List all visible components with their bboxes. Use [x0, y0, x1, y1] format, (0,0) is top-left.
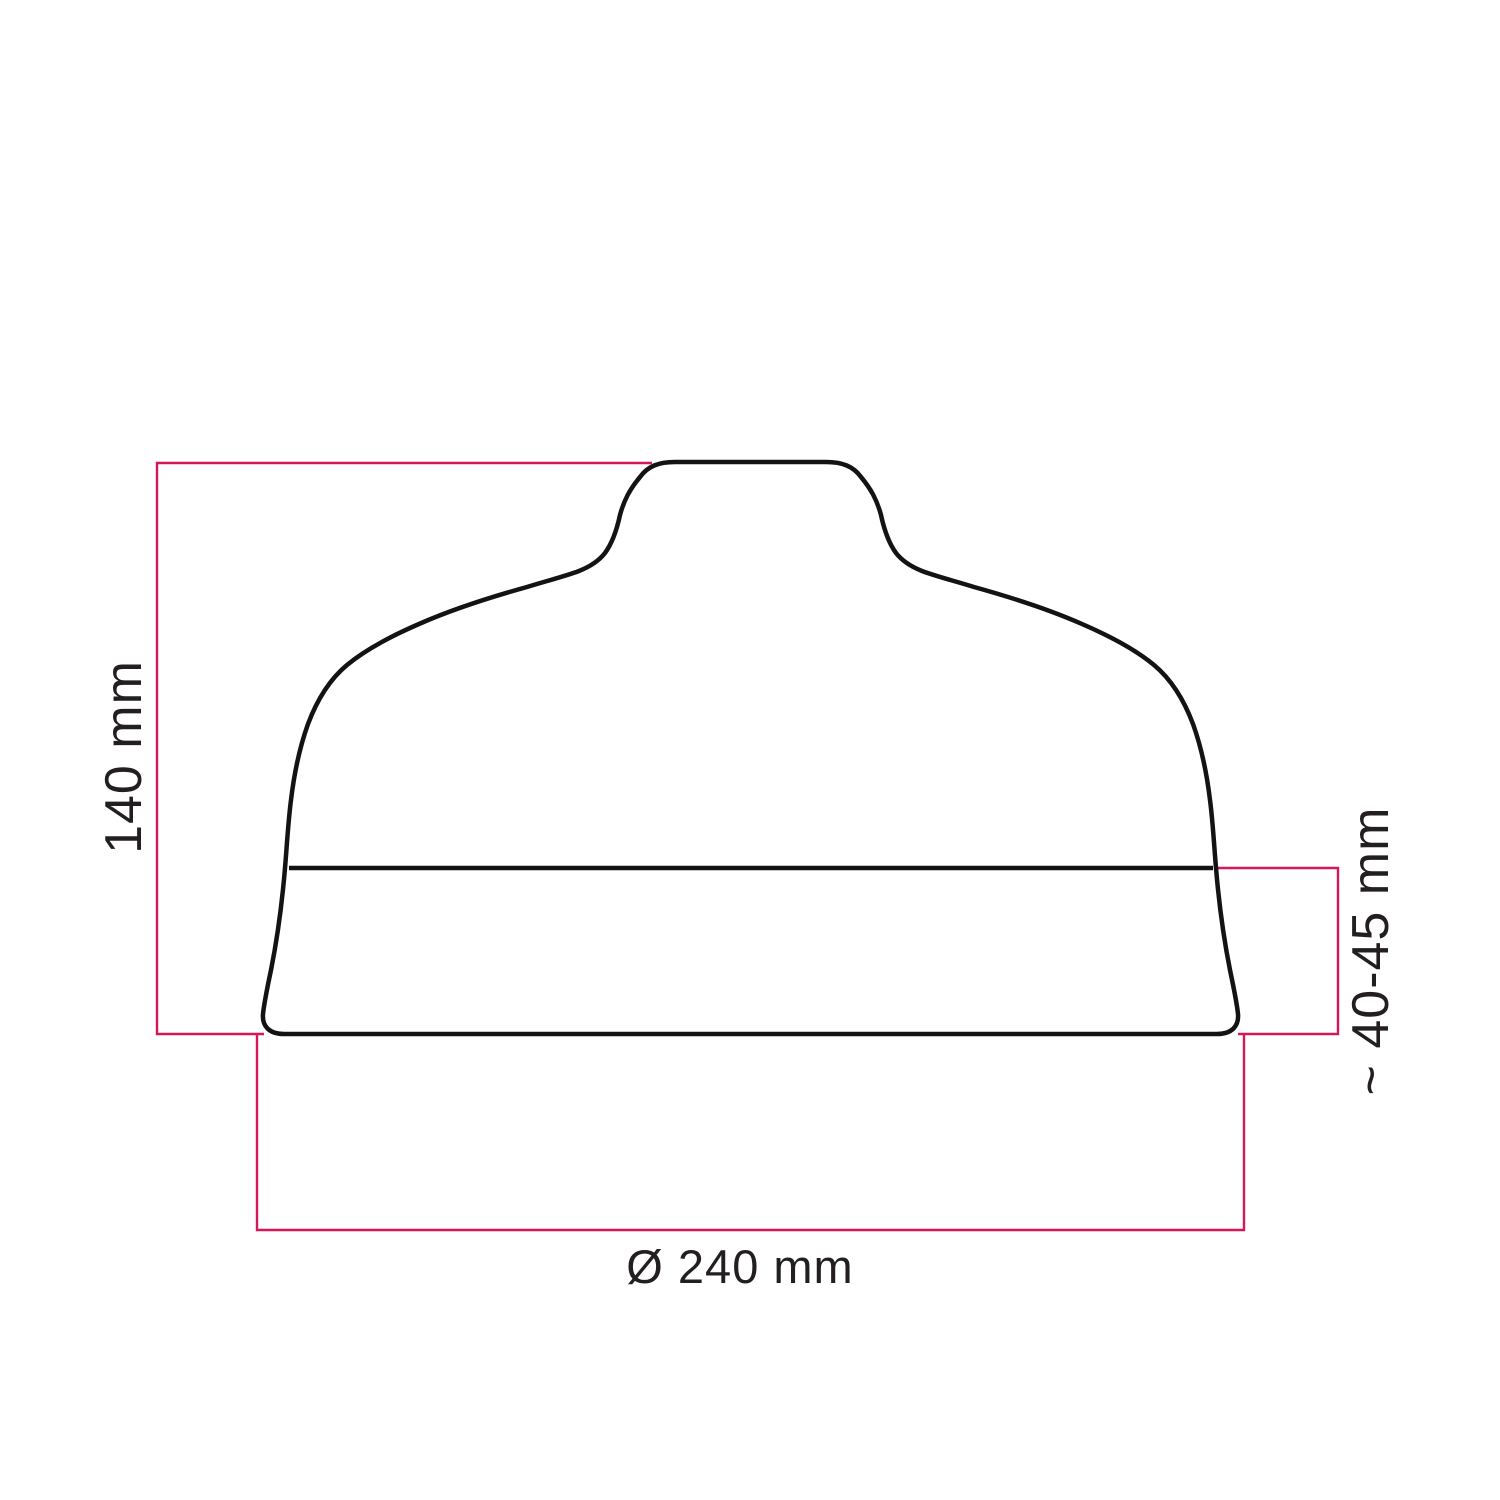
- lampshade-drawing: [263, 462, 1238, 1034]
- height-dimension-label: 140 mm: [95, 660, 153, 854]
- dimension-diagram: 140 mm ~ 40-45 mm Ø 240 mm: [0, 0, 1500, 1500]
- diameter-dimension-label: Ø 240 mm: [626, 1240, 853, 1293]
- lampshade-dimension-svg: 140 mm ~ 40-45 mm Ø 240 mm: [0, 0, 1500, 1500]
- dimension-lines: [157, 463, 1338, 1230]
- edge-height-dimension-line: [1214, 868, 1338, 1034]
- edge-height-dimension-label: ~ 40-45 mm: [1342, 807, 1400, 1096]
- height-dimension-line: [157, 463, 652, 1034]
- diameter-dimension-line: [257, 1034, 1244, 1230]
- lampshade-outline: [263, 462, 1238, 1034]
